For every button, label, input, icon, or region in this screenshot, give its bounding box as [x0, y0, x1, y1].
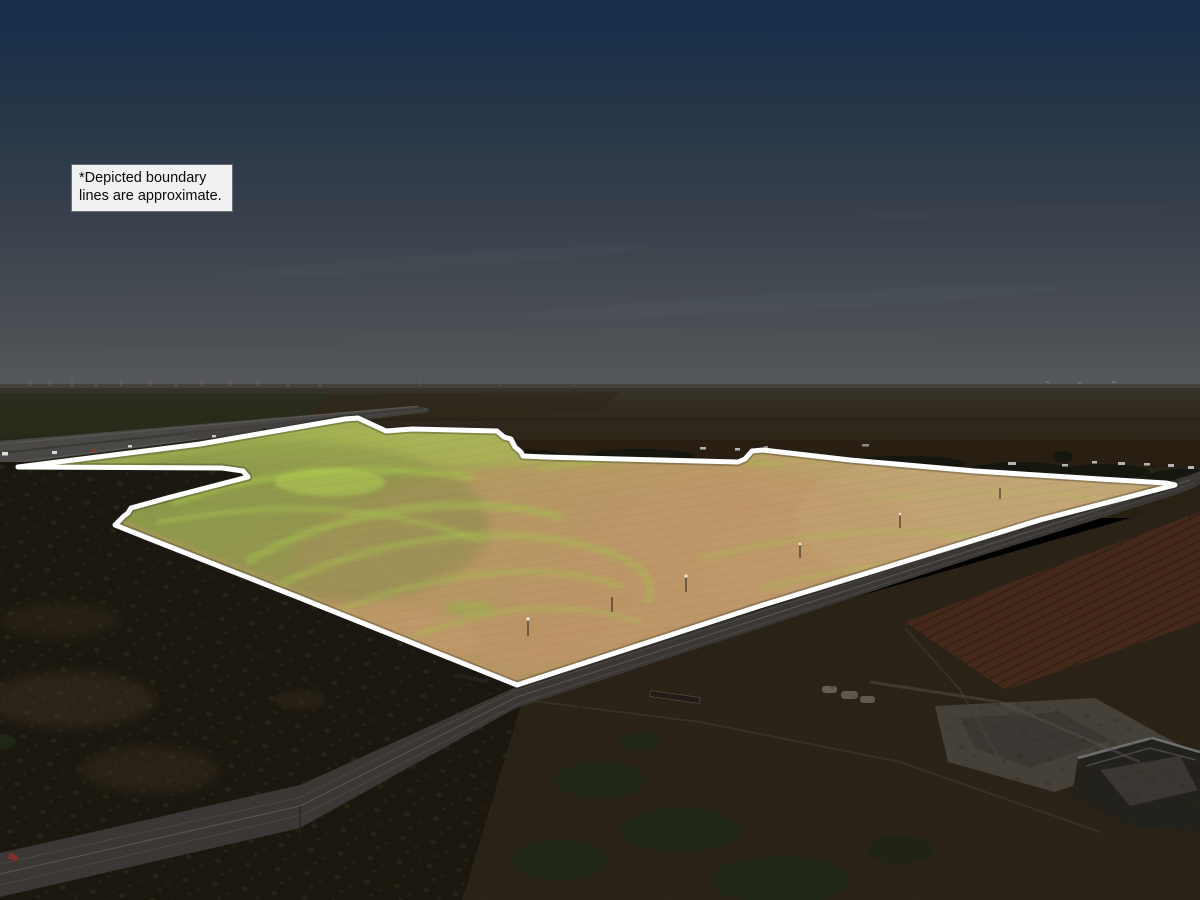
boundary-disclaimer-label: *Depicted boundary lines are approximate… [72, 165, 232, 211]
disclaimer-line1: *Depicted boundary [79, 170, 206, 186]
aerial-drone-photo: *Depicted boundary lines are approximate… [0, 0, 1200, 900]
disclaimer-line2: lines are approximate. [79, 188, 222, 204]
photo-canvas [0, 0, 1200, 900]
